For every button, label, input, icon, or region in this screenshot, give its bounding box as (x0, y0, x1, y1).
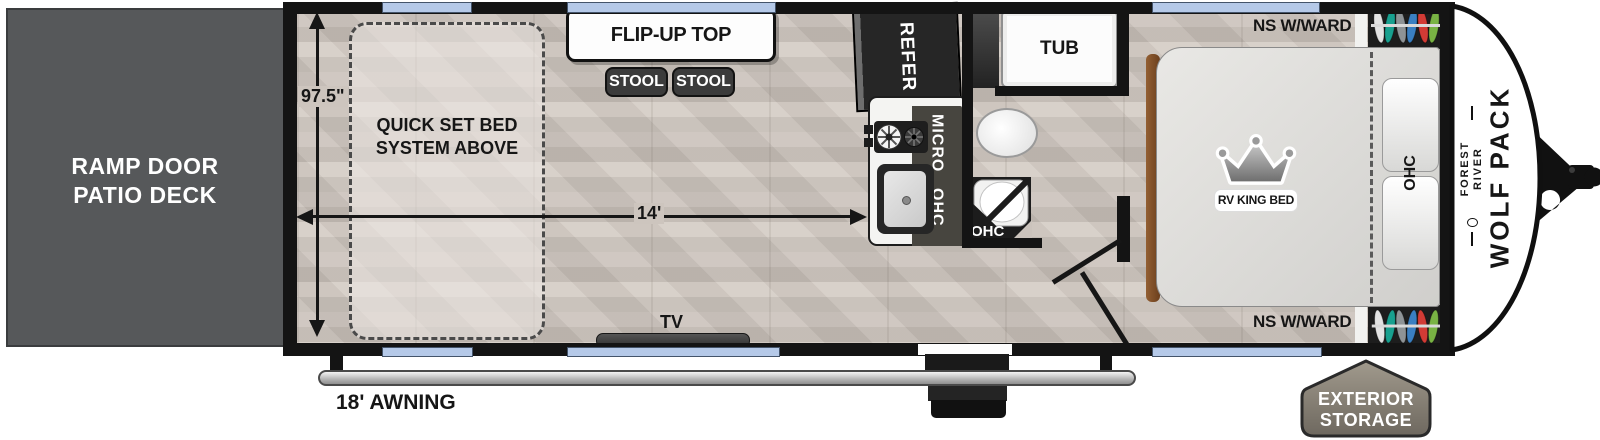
microwave-label: MICRO (927, 114, 945, 172)
burner-small (905, 128, 924, 147)
shower-bottom-wall (962, 238, 1042, 248)
awning-label: 18' AWNING (336, 391, 456, 415)
bath-linen-cabinet (973, 10, 999, 88)
bed-label: RV KING BED (1218, 194, 1294, 208)
bathroom-wall-left (962, 10, 973, 248)
tv-label: TV (660, 312, 683, 333)
corner-shower: OHC (966, 176, 1034, 244)
stool-1: STOOL (605, 67, 668, 97)
refrigerator-label: REFER (895, 22, 920, 92)
brand-label: FOREST RIVER (1459, 125, 1484, 213)
bathtub: TUB (1001, 10, 1118, 88)
entry-steps (931, 400, 1006, 418)
length-dimension-label: 14' (634, 203, 664, 224)
burner-large (877, 125, 901, 149)
awning-roller (318, 370, 1136, 386)
kitchen-sink (877, 164, 934, 234)
flip-up-top-label: FLIP-UP TOP (611, 24, 731, 47)
quick-set-bed-zone (349, 22, 545, 340)
bedroom-wall-stub (1117, 196, 1130, 262)
height-dimension-arrow-up (309, 12, 325, 29)
window-bottom-3 (1152, 347, 1322, 357)
window-top-2 (567, 2, 776, 13)
brand-rule (1471, 232, 1473, 246)
stove-knob (864, 138, 873, 147)
bed-name-plate: RV KING BED (1215, 190, 1297, 211)
window-bottom-2 (567, 347, 780, 357)
brand-rule (1471, 106, 1473, 120)
brand-mark: FOREST RIVER (1462, 106, 1482, 246)
wardrobe-top-label: NS W/WARD (1253, 16, 1351, 36)
window-top-3 (1152, 2, 1320, 13)
model-mark: WOLF PACK (1486, 70, 1516, 285)
length-dimension-line (311, 215, 853, 218)
height-dimension-line (316, 24, 319, 324)
exterior-storage-label: EXTERIOR STORAGE (1302, 388, 1430, 432)
length-dimension-arrow-right (850, 209, 867, 225)
entry-steps (928, 385, 1007, 401)
wardrobe-bottom-panel (1355, 307, 1367, 347)
model-label: WOLF PACK (1486, 86, 1516, 269)
length-dimension-arrow-left (296, 209, 313, 225)
bathroom-wall-under-tub (995, 86, 1129, 96)
bed-ohc: OHC (1390, 152, 1432, 194)
window-top-1 (382, 2, 472, 13)
toilet (976, 108, 1038, 158)
bed-ohc-label: OHC (1402, 155, 1420, 191)
height-dimension-label: 97.5" (298, 86, 348, 107)
stool-2: STOOL (672, 67, 735, 97)
bed-head-divider (1370, 52, 1373, 303)
quick-set-bed-label: QUICK SET BED SYSTEM ABOVE (355, 112, 539, 162)
height-dimension-arrow-down (309, 320, 325, 337)
floorplan: RAMP DOOR PATIO DECK QUICK SET BED SYSTE… (0, 0, 1600, 440)
bathtub-label: TUB (1040, 38, 1079, 60)
flip-up-top-counter: FLIP-UP TOP (566, 8, 776, 62)
brand-logo-icon (1467, 218, 1478, 228)
ramp-door-label: RAMP DOOR PATIO DECK (30, 148, 260, 214)
bathroom-wall-right-upper (1117, 10, 1129, 96)
stove-burners (873, 120, 929, 154)
window-bottom-1 (382, 347, 473, 357)
sink-drain (902, 196, 911, 205)
wardrobe-bottom-label: NS W/WARD (1253, 312, 1351, 332)
crown-icon (1212, 130, 1300, 194)
wall-left (283, 2, 297, 356)
stove-knob (864, 125, 873, 134)
